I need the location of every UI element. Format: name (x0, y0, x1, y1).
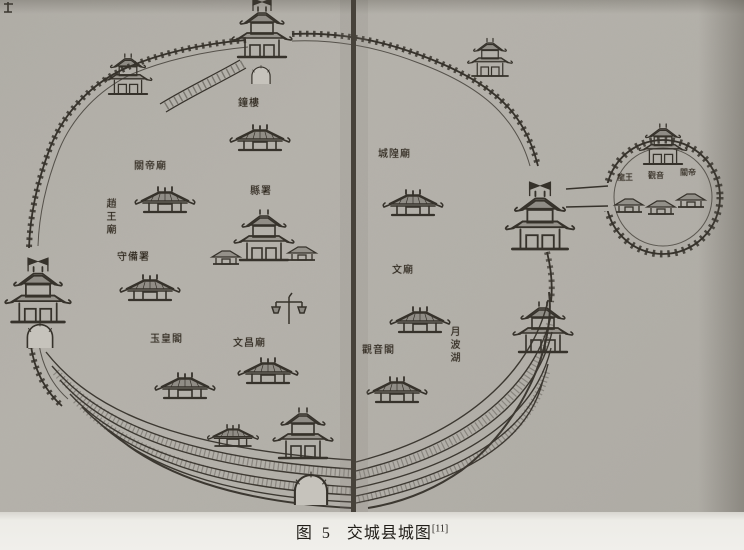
map-label-zhaowang-temple: 趙王廟 (104, 198, 115, 237)
map-label-city-god-temple: 城隍廟 (378, 149, 411, 160)
map-label-garrison-office: 守備署 (117, 252, 150, 263)
book-fold-line (340, 0, 368, 512)
figure-citation-ref: [11] (432, 524, 448, 535)
map-label-bell-tower: 鐘樓 (238, 98, 260, 109)
map-label-shrine-3: 關帝 (680, 167, 696, 178)
map-label-county-yamen: 縣署 (250, 186, 272, 197)
map-label-guandi-temple: 關帝廟 (134, 161, 167, 172)
figure-title: 交城县城图 (347, 525, 432, 542)
map-label-wenchang-temple: 文昌廟 (233, 338, 266, 349)
map-drawing (0, 0, 744, 512)
map-label-shrine-1: 龍王 (617, 172, 633, 183)
figure-caption-strip: 图 5交城县城图[11] (0, 512, 744, 550)
scanned-book-page: 鐘樓 關帝廟 趙王廟 守備署 縣署 文昌廟 玉皇閣 城隍廟 文廟 月波湖 觀音閣… (0, 0, 744, 550)
figure-caption: 图 5交城县城图[11] (296, 519, 448, 543)
map-label-guanyin-pavilion: 觀音閣 (362, 345, 395, 356)
figure-number: 图 5 (296, 525, 333, 542)
map-label-jade-emperor: 玉皇閣 (150, 334, 183, 345)
map-label-shrine-2: 觀音 (648, 170, 664, 181)
map-label-confucian-temple: 文廟 (392, 265, 414, 276)
map-label-yuebo-lake: 月波湖 (448, 326, 459, 365)
map-figure-scan: 鐘樓 關帝廟 趙王廟 守備署 縣署 文昌廟 玉皇閣 城隍廟 文廟 月波湖 觀音閣… (0, 0, 744, 512)
